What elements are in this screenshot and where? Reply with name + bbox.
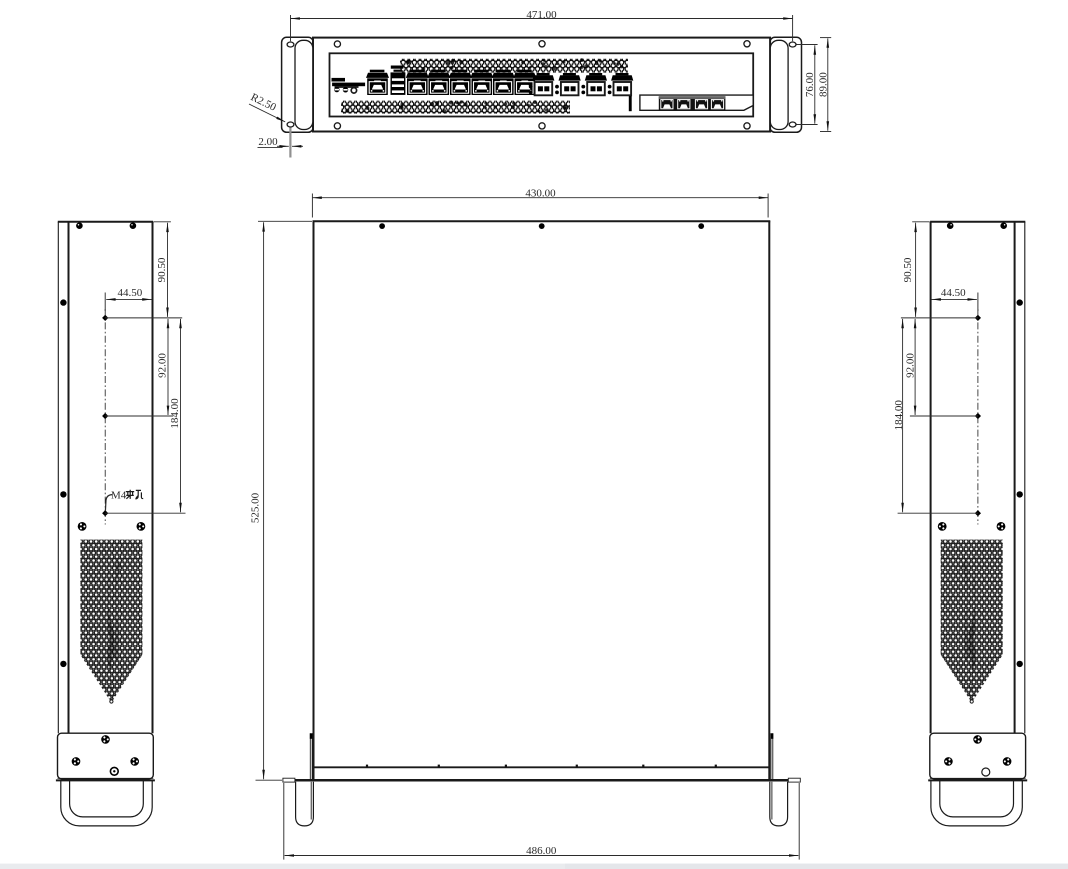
svg-text:90.50: 90.50 [902,257,914,282]
svg-text:2.00: 2.00 [258,136,278,148]
svg-text:92.00: 92.00 [157,353,169,378]
svg-text:89.00: 89.00 [817,72,829,97]
svg-text:471.00: 471.00 [526,9,557,21]
svg-text:44.50: 44.50 [118,287,143,299]
svg-text:76.00: 76.00 [804,72,816,97]
svg-text:R2.50: R2.50 [249,91,279,114]
svg-text:486.00: 486.00 [526,845,557,857]
svg-text:525.00: 525.00 [249,492,261,523]
svg-text:92.00: 92.00 [905,353,917,378]
svg-text:184.00: 184.00 [893,400,905,431]
svg-text:M4: M4 [111,490,127,502]
svg-text:44.50: 44.50 [941,287,966,299]
svg-text:184.00: 184.00 [169,398,181,429]
svg-text:430.00: 430.00 [525,187,556,199]
svg-text:90.50: 90.50 [156,257,168,282]
